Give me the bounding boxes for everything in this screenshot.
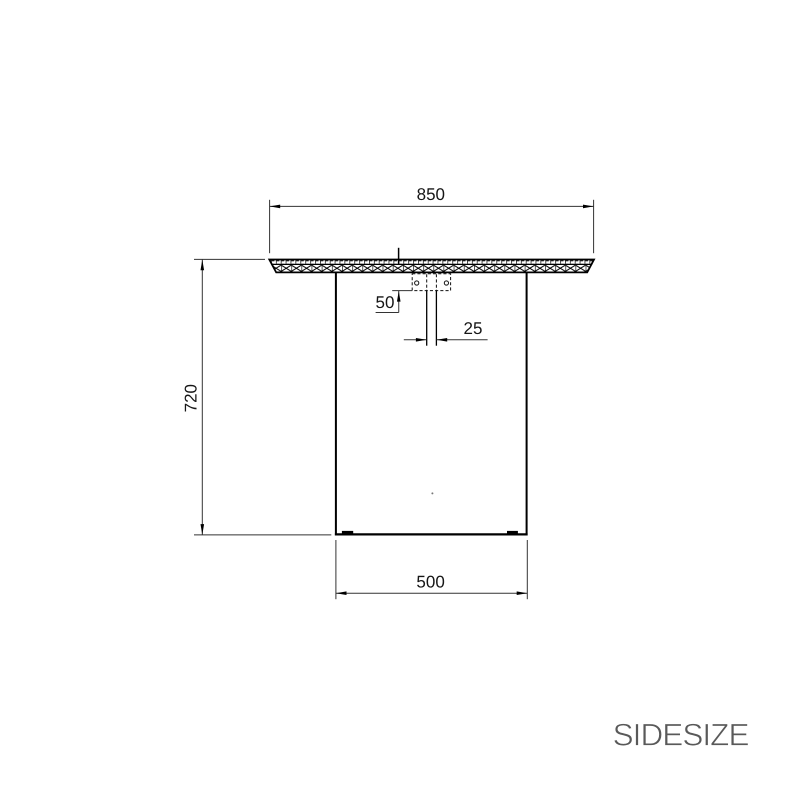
svg-text:850: 850 (417, 185, 445, 204)
svg-text:50: 50 (376, 293, 395, 312)
svg-text:SIDESIZE: SIDESIZE (613, 717, 749, 753)
svg-text:500: 500 (416, 573, 444, 592)
svg-text:720: 720 (181, 384, 200, 412)
svg-text:25: 25 (464, 319, 483, 338)
